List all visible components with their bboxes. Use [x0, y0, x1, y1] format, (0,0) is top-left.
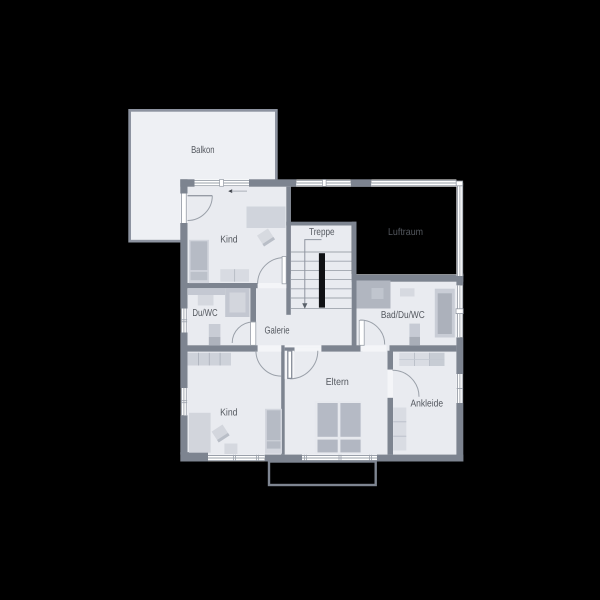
svg-text:Bad/Du/WC: Bad/Du/WC	[381, 310, 425, 321]
svg-text:Du/WC: Du/WC	[192, 308, 217, 319]
svg-text:Balkon: Balkon	[191, 145, 214, 156]
svg-text:Kind: Kind	[220, 235, 237, 246]
svg-text:Eltern: Eltern	[326, 377, 349, 388]
svg-text:Luftraum: Luftraum	[388, 227, 423, 238]
svg-text:Kind: Kind	[220, 407, 237, 418]
svg-text:Ankleide: Ankleide	[410, 399, 443, 410]
svg-text:Treppe: Treppe	[309, 227, 335, 238]
svg-text:Galerie: Galerie	[264, 326, 289, 337]
